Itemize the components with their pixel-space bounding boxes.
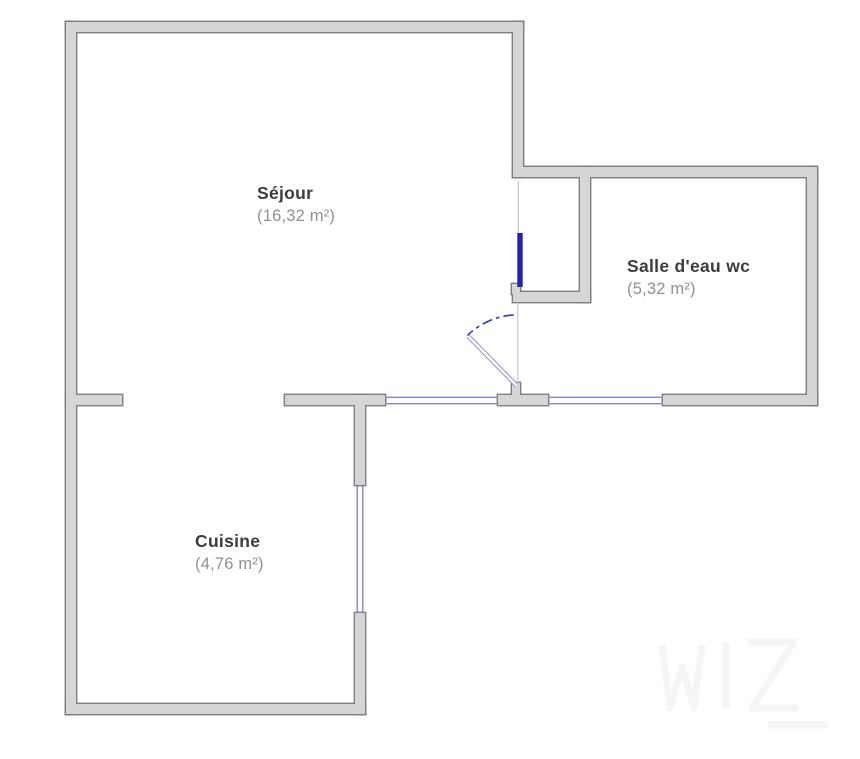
door-leaf [469, 337, 517, 386]
nook-door-panel [517, 233, 522, 287]
wall-salle-eau-bottom [663, 395, 817, 405]
room-label-sejour: Séjour (16,32 m²) [257, 183, 335, 226]
room-area-cuisine: (4,76 m²) [195, 555, 264, 574]
windows [357, 397, 663, 613]
wall-salle-eau-top [513, 167, 817, 177]
room-label-cuisine: Cuisine (4,76 m²) [195, 531, 264, 574]
room-label-salle-eau: Salle d'eau wc (5,32 m²) [627, 256, 750, 299]
room-area-sejour: (16,32 m²) [257, 207, 335, 226]
wall-nook-east [580, 167, 590, 302]
wall-sejour-bottom-left [66, 395, 122, 405]
wall-sejour-top [66, 22, 523, 32]
walls [66, 22, 817, 714]
floor-plan-drawing [0, 0, 860, 759]
watermark-glyph [662, 645, 702, 707]
room-name-salle-eau: Salle d'eau wc [627, 256, 750, 277]
wall-cuisine-bottom [66, 704, 365, 714]
wall-cuisine-right-lower [355, 613, 365, 714]
wall-step-vertical [513, 22, 523, 177]
room-name-sejour: Séjour [257, 183, 335, 204]
wall-sejour-bottom-mid [285, 395, 385, 405]
wall-nook-bottom [513, 292, 590, 302]
room-name-cuisine: Cuisine [195, 531, 264, 552]
wall-salle-eau-right [807, 167, 817, 405]
door-swing-arc [468, 315, 513, 335]
watermark-logo [662, 642, 828, 725]
wall-left [66, 22, 76, 714]
walls-outline [66, 22, 817, 714]
floor-plan: Séjour (16,32 m²) Salle d'eau wc (5,32 m… [0, 0, 860, 759]
wall-cuisine-right-upper [355, 395, 365, 485]
watermark-glyph [748, 642, 798, 708]
wall-entry-bottom [498, 395, 548, 405]
room-area-salle-eau: (5,32 m²) [627, 280, 750, 299]
